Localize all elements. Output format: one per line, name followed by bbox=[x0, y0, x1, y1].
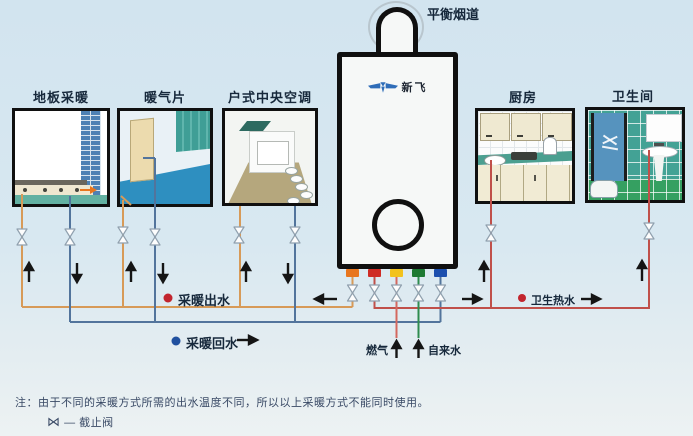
valve-legend-dash: — bbox=[64, 417, 76, 429]
air-vent bbox=[295, 183, 308, 191]
stop-valve-icon bbox=[118, 227, 128, 243]
wall-board bbox=[257, 141, 289, 165]
flow-arrow-up bbox=[242, 263, 250, 282]
valve-legend-label: 截止阀 bbox=[79, 417, 114, 429]
panel-radiator bbox=[117, 108, 213, 207]
pipe-dot bbox=[43, 188, 47, 192]
flow-arrow-right bbox=[237, 336, 257, 344]
flow-arrow-down bbox=[284, 263, 292, 282]
boiler-port-heating-return bbox=[434, 269, 447, 277]
wing-logo-icon bbox=[368, 81, 398, 94]
wall-cabinet bbox=[646, 114, 682, 142]
boiler-port-hot-water bbox=[368, 269, 381, 277]
return-legend-dot bbox=[172, 337, 181, 346]
panel-title-radiator: 暖气片 bbox=[144, 87, 186, 106]
footnote-valve-legend: ⋈ — 截止阀 bbox=[47, 414, 114, 430]
stop-valve-icon bbox=[65, 229, 75, 245]
cabinet-handle bbox=[517, 135, 523, 137]
flow-arrow-up bbox=[127, 263, 135, 282]
shower-enclosure bbox=[591, 113, 627, 181]
cabinet-handle bbox=[496, 175, 498, 181]
air-vent bbox=[285, 167, 298, 175]
panel-kitchen bbox=[475, 108, 575, 204]
tap-water-inlet-arrow bbox=[415, 341, 423, 358]
flow-arrow-up bbox=[480, 262, 488, 282]
cabinet-handle bbox=[486, 135, 492, 137]
air-vent bbox=[287, 197, 300, 205]
flow-arrow-left bbox=[315, 295, 337, 303]
balanced-flue bbox=[376, 7, 418, 57]
panel-title-bathroom: 卫生间 bbox=[612, 86, 654, 105]
stop-valve-icon bbox=[150, 229, 160, 245]
lower-cabinets bbox=[478, 165, 572, 201]
stop-valve-icon bbox=[644, 223, 654, 239]
boiler-system-diagram: 地板采暖 暖气片 户式中央空调 厨房 卫生间 bbox=[0, 0, 693, 436]
radiator-unit bbox=[130, 118, 154, 183]
boiler-unit: 新飞 bbox=[337, 52, 458, 269]
boiler-port-gas bbox=[390, 269, 403, 277]
stop-valve-icon bbox=[234, 227, 244, 243]
upper-cabinet bbox=[480, 113, 510, 141]
panel-title-kitchen: 厨房 bbox=[509, 87, 537, 106]
pipe-dot bbox=[23, 188, 27, 192]
boiler-viewport bbox=[372, 199, 424, 251]
panel-central-ac bbox=[222, 108, 318, 206]
cabinet-handle bbox=[534, 175, 536, 181]
stop-valve-icon bbox=[370, 285, 380, 301]
supply-legend-dot bbox=[164, 294, 173, 303]
flow-arrow-down bbox=[159, 263, 167, 282]
tap-water-inlet-label: 自来水 bbox=[428, 342, 461, 358]
hot-water-legend-dot bbox=[518, 294, 526, 302]
brand-logo: 新飞 bbox=[342, 79, 453, 95]
flow-arrow-right bbox=[462, 295, 481, 303]
floor-surface bbox=[15, 195, 107, 204]
heating-pipe-layer bbox=[15, 185, 93, 195]
boiler-port-tap-water bbox=[412, 269, 425, 277]
return-legend-label: 采暖回水 bbox=[186, 333, 238, 352]
flue-label: 平衡烟道 bbox=[427, 4, 479, 23]
panel-title-floor-heating: 地板采暖 bbox=[33, 87, 89, 106]
air-vent bbox=[290, 175, 303, 183]
stop-valve-icon bbox=[17, 229, 27, 245]
stop-valve-icon bbox=[436, 285, 446, 301]
flow-arrow-down bbox=[73, 263, 81, 282]
brand-name: 新飞 bbox=[402, 79, 428, 95]
panel-floor-heating bbox=[12, 108, 110, 207]
gas-inlet-arrow bbox=[393, 341, 401, 358]
counter-canister bbox=[543, 137, 557, 155]
hot-water-legend-label: 卫生热水 bbox=[531, 292, 575, 308]
stove bbox=[511, 152, 537, 160]
air-vent bbox=[300, 191, 313, 199]
supply-legend-label: 采暖出水 bbox=[178, 290, 230, 309]
flow-arrow-up bbox=[25, 263, 33, 282]
footnote-line1: 注：由于不同的采暖方式所需的出水温度不同，所以以上采暖方式不能同时使用。 bbox=[15, 394, 429, 410]
panel-bathroom bbox=[585, 107, 685, 203]
water-spray bbox=[602, 146, 618, 151]
pipe-dot bbox=[59, 188, 63, 192]
upper-cabinet bbox=[511, 113, 541, 141]
stop-valve-icon bbox=[486, 225, 496, 241]
boiler-port-heating-supply bbox=[346, 269, 359, 277]
curtain bbox=[176, 111, 210, 152]
stop-valve-icon bbox=[290, 227, 300, 243]
flow-arrow-right bbox=[581, 295, 600, 303]
gas-inlet-label: 燃气 bbox=[366, 342, 388, 358]
flow-arrow-up bbox=[638, 261, 646, 281]
stop-valve-icon bbox=[348, 285, 358, 301]
toilet bbox=[590, 180, 618, 198]
stop-valve-symbol: ⋈ bbox=[47, 414, 61, 429]
stop-valve-icon bbox=[392, 285, 402, 301]
stop-valve-icon bbox=[414, 285, 424, 301]
pipe-dot bbox=[75, 188, 79, 192]
panel-title-central-ac: 户式中央空调 bbox=[228, 87, 312, 106]
